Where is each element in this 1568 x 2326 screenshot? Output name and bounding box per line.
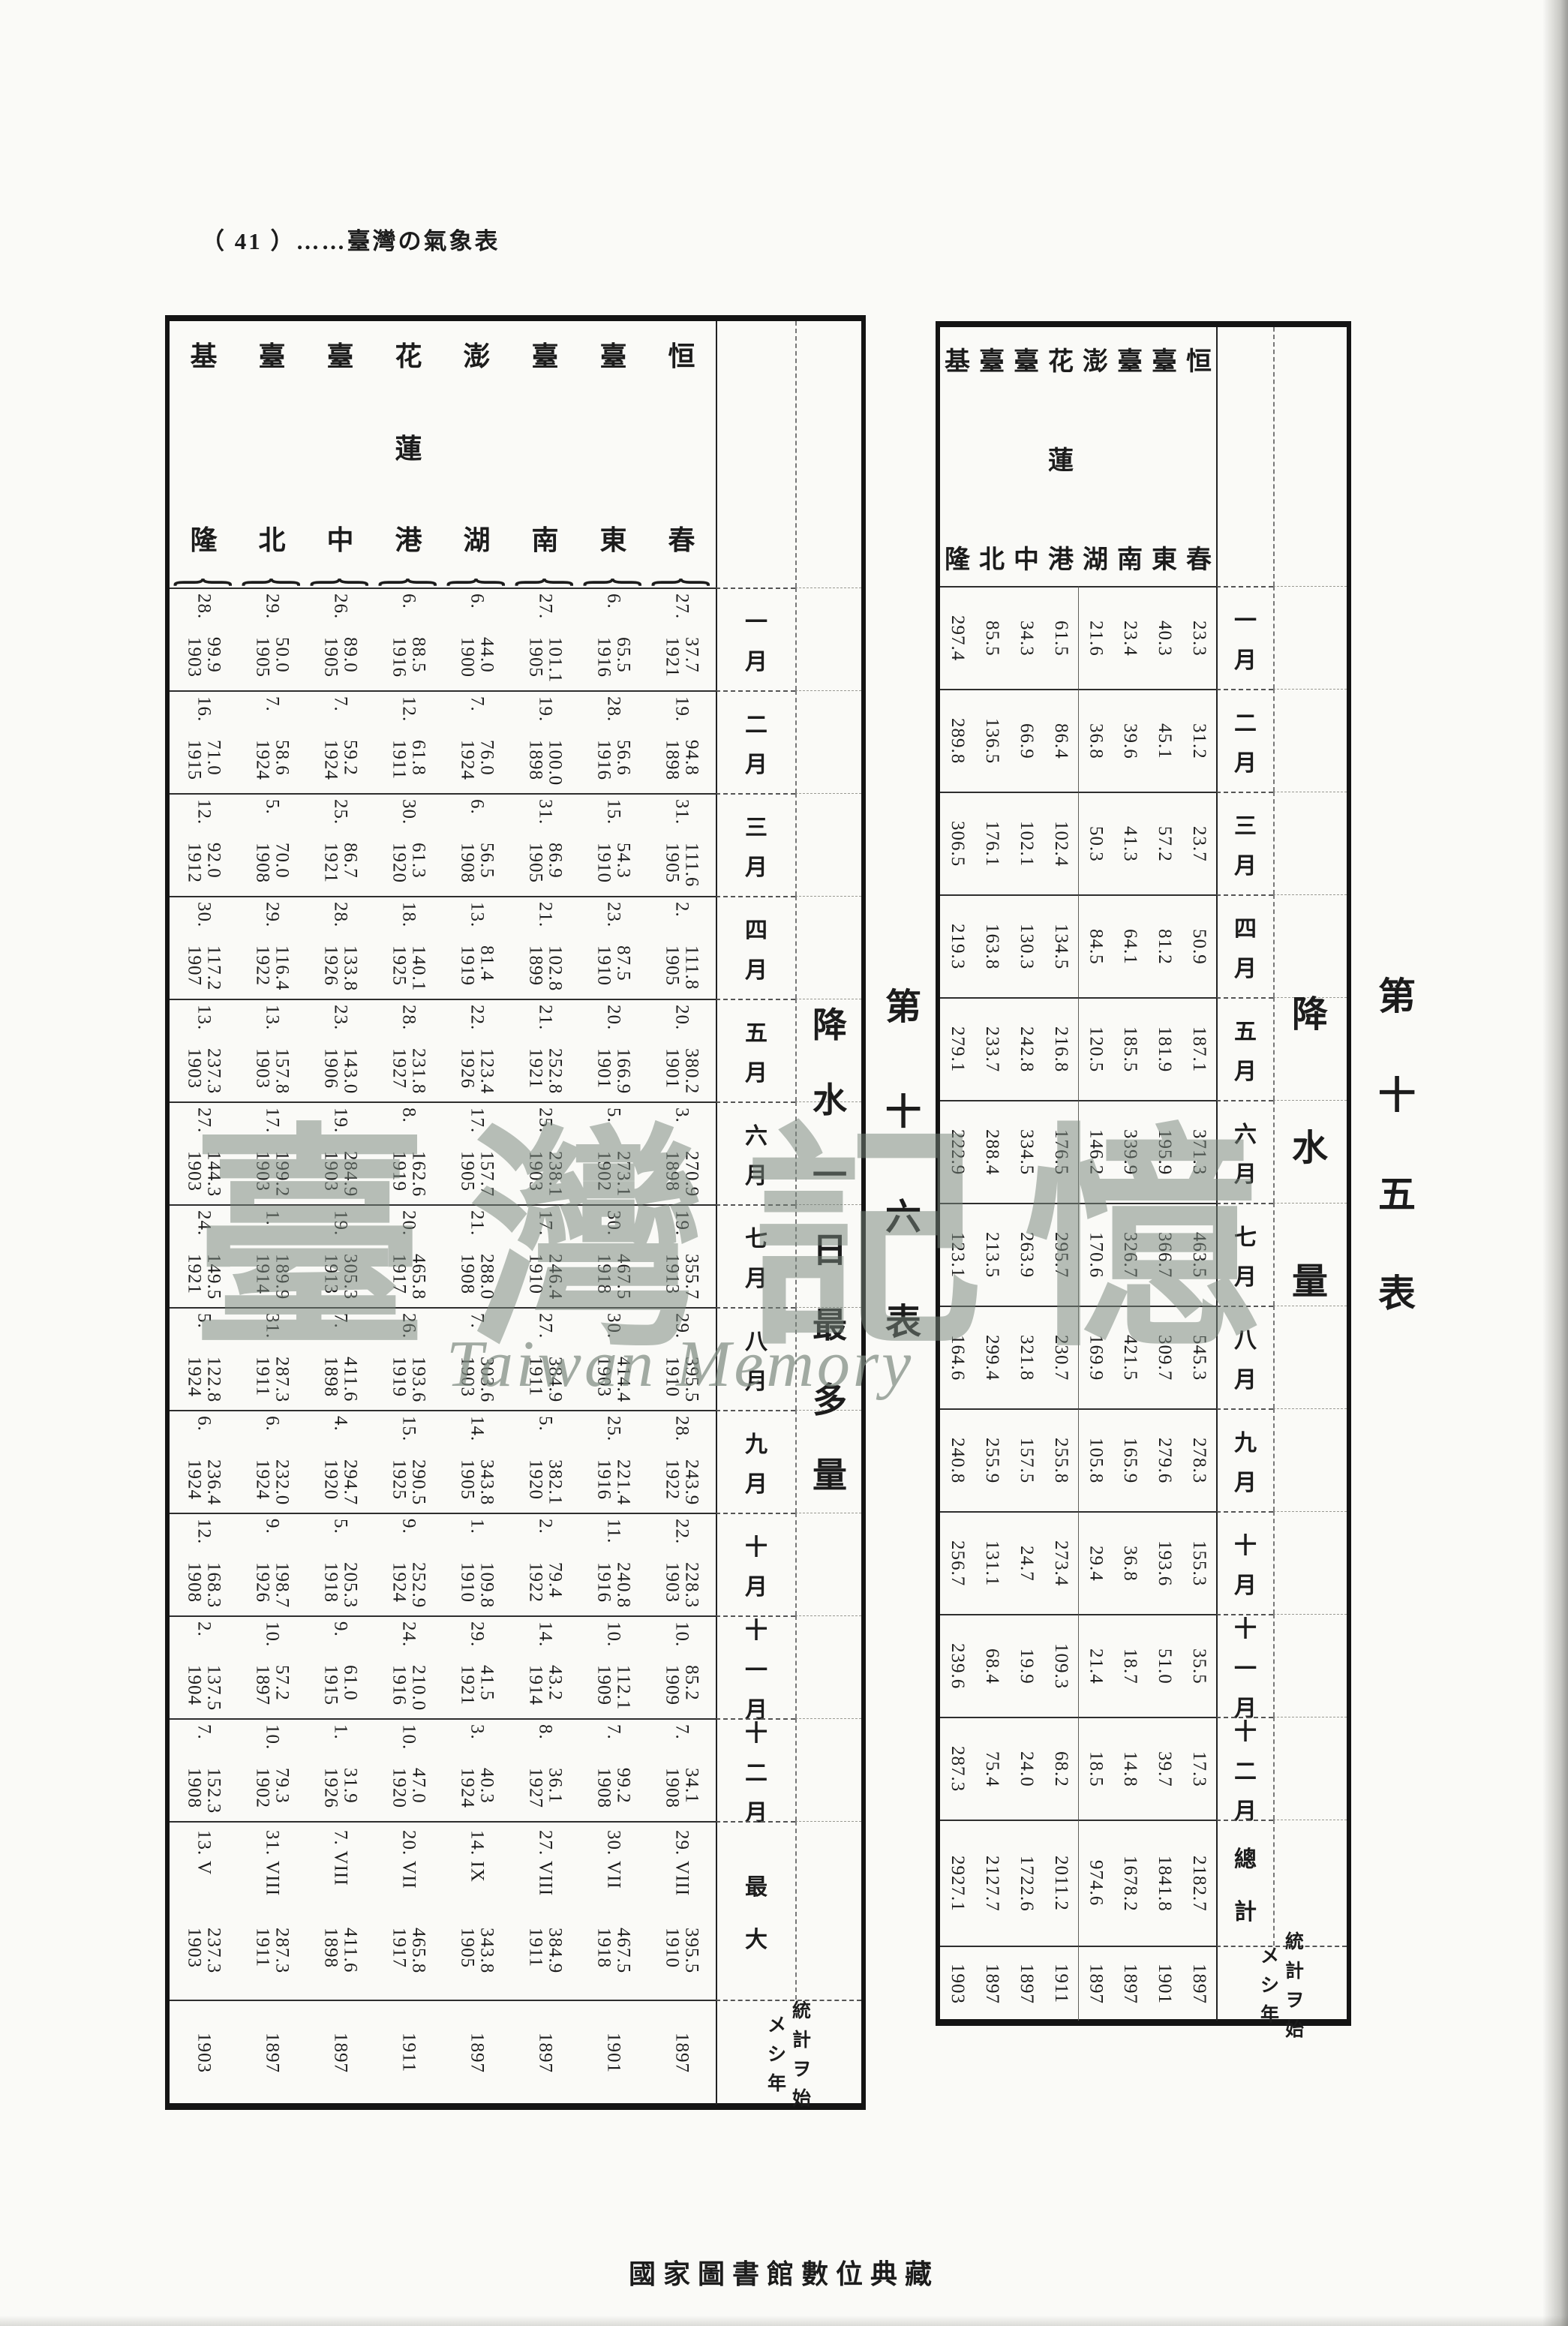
max-date-line: 29. VIII xyxy=(672,1830,692,1926)
data-cell: 165.9 xyxy=(1113,1408,1147,1511)
data-cell: 155.3 xyxy=(1182,1511,1216,1614)
data-cell: 1897 xyxy=(647,2000,716,2105)
row-label-cell: 二月 xyxy=(1216,689,1273,792)
day-of-month: 29. xyxy=(443,1621,511,1665)
data-cell: 2182.7 xyxy=(1182,1820,1216,1946)
max-date-line: 31. VIII xyxy=(263,1830,282,1926)
precipitation-value: 50.9 xyxy=(1182,896,1216,997)
station-name-char: 臺 xyxy=(979,341,1005,377)
row-label-cell: 十二月 xyxy=(1216,1717,1273,1820)
amount-and-year-line: 133.8 xyxy=(341,945,360,991)
amount-and-year-line: 152.3 xyxy=(204,1768,224,1814)
data-cell: 4.294.71920 xyxy=(306,1410,374,1513)
day-of-month: 6. xyxy=(374,594,443,637)
amount-and-year-line: 1898 xyxy=(526,740,545,786)
amount-and-year-line: 50.0 xyxy=(272,637,292,678)
day-of-month: 18. xyxy=(399,902,419,945)
max-amount-and-year-line: 384.9 xyxy=(545,1928,565,1973)
month-label: 四月 xyxy=(1218,896,1273,997)
row-label-cell: 四月 xyxy=(716,896,795,999)
precipitation-value: 278.3 xyxy=(1182,1410,1216,1511)
precipitation-value: 279.1 xyxy=(940,999,975,1100)
month-label-char: 月 xyxy=(745,849,767,882)
amount-and-year: 59.21924 xyxy=(306,740,374,790)
data-cell: 39.6 xyxy=(1113,689,1147,792)
precipitation-value: 130.3 xyxy=(1017,924,1036,969)
day-of-month: 12. xyxy=(194,1519,214,1562)
data-cell: 16.71.01915 xyxy=(170,690,238,793)
data-cell: 21.4 xyxy=(1078,1614,1113,1717)
day-of-month-line: 6. xyxy=(467,799,487,843)
station-name-char: 花 xyxy=(1048,341,1074,377)
scan-edge-bottom xyxy=(0,2315,1568,2326)
title-strip-cell xyxy=(1273,792,1347,894)
station-name-char: 基 xyxy=(945,341,970,377)
day-of-month: 20. xyxy=(604,1005,623,1048)
amount-and-year-line: 343.8 xyxy=(477,1459,497,1505)
precipitation-value-line: 273.4 xyxy=(1051,1540,1071,1586)
station-header-cell: 花蓮港{ xyxy=(374,321,443,588)
amount-and-year: 111.61905 xyxy=(647,843,716,893)
data-cell: 130.3 xyxy=(1009,894,1044,997)
precipitation-value-line: 29.4 xyxy=(1086,1546,1106,1582)
month-label: 十一月 xyxy=(1218,1615,1273,1717)
amount-and-year-line: 243.9 xyxy=(682,1459,701,1505)
precipitation-value: 273.4 xyxy=(1051,1540,1071,1586)
day-of-month: 23. xyxy=(604,902,623,945)
amount-and-year: 210.01916 xyxy=(389,1665,428,1711)
station-header-cell: 臺東 xyxy=(1147,327,1182,586)
precipitation-value: 81.2 xyxy=(1155,929,1174,965)
amount-and-year: 81.41919 xyxy=(458,945,497,986)
amount-and-year: 102.81899 xyxy=(511,945,579,996)
precipitation-value: 29.4 xyxy=(1079,1513,1113,1614)
precipitation-value: 240.8 xyxy=(948,1438,967,1483)
table-15-title-char: 降 xyxy=(1292,984,1328,1037)
precipitation-value: 66.9 xyxy=(1017,723,1036,759)
month-label-char: 十 xyxy=(1234,1713,1257,1746)
amount-and-year-line: 294.7 xyxy=(341,1459,360,1505)
data-cell: 11.240.81916 xyxy=(579,1513,647,1615)
day-of-month-line: 7. xyxy=(194,1724,214,1768)
day-of-month: 2. xyxy=(170,1621,238,1665)
day-of-month: 14. xyxy=(536,1621,555,1665)
amount-and-year-line: 1901 xyxy=(594,1048,614,1094)
annual-total: 1841.8 xyxy=(1147,1821,1182,1946)
max-date: 13. V xyxy=(170,1830,238,1926)
amount-and-year: 99.21908 xyxy=(594,1768,633,1808)
precipitation-value-line: 255.8 xyxy=(1051,1438,1071,1483)
data-cell: 239.6 xyxy=(940,1614,975,1717)
precipitation-value-line: 131.1 xyxy=(982,1540,1002,1586)
day-of-month: 30. xyxy=(399,799,419,843)
amount-and-year-line: 85.2 xyxy=(682,1665,701,1705)
table-16-title-char: 量 xyxy=(813,1448,847,1498)
amount-and-year: 123.41926 xyxy=(458,1048,497,1094)
row-label-cell: 三月 xyxy=(1216,792,1273,894)
day-of-month: 1. xyxy=(306,1724,374,1768)
day-of-month: 5. xyxy=(306,1519,374,1562)
day-of-month-line: 5. xyxy=(331,1519,350,1562)
data-cell: 1722.6 xyxy=(1009,1820,1044,1946)
label-char: メ xyxy=(767,2010,786,2037)
month-label: 九月 xyxy=(1218,1410,1273,1511)
month-label: 十月 xyxy=(717,1514,795,1615)
station-header-cell: 臺南 xyxy=(1113,327,1147,586)
day-of-month: 12. xyxy=(194,799,214,843)
precipitation-value-line: 81.2 xyxy=(1155,929,1174,965)
precipitation-value: 255.8 xyxy=(1044,1410,1078,1511)
amount-and-year-line: 166.9 xyxy=(614,1048,633,1094)
day-of-month-line: 15. xyxy=(399,1416,419,1459)
amount-and-year-line: 86.9 xyxy=(545,843,565,883)
precipitation-value-line: 21.4 xyxy=(1086,1648,1106,1684)
day-of-month: 5. xyxy=(331,1519,350,1562)
amount-and-year: 57.21897 xyxy=(253,1665,292,1705)
data-cell: 10.57.21897 xyxy=(238,1615,306,1718)
data-cell: 29. VIII395.51910 xyxy=(647,1821,716,2000)
max-amount-and-year: 237.31903 xyxy=(185,1928,224,1973)
amount-and-year: 198.71926 xyxy=(253,1562,292,1608)
data-cell: 974.6 xyxy=(1078,1820,1113,1946)
data-cell: 9.61.01915 xyxy=(306,1615,374,1718)
day-of-month: 20. xyxy=(579,1005,647,1048)
amount-and-year-line: 1903 xyxy=(185,637,204,678)
data-cell: 27. VIII384.91911 xyxy=(511,1821,579,2000)
row-label-cell: 十一月 xyxy=(1216,1614,1273,1717)
station-brace: { xyxy=(578,578,648,587)
data-cell: 187.1 xyxy=(1182,997,1216,1100)
precipitation-value: 287.3 xyxy=(940,1718,975,1820)
day-of-month: 6. xyxy=(238,1416,306,1459)
day-of-month: 20. xyxy=(647,1005,716,1048)
amount-and-year: 294.71920 xyxy=(306,1459,374,1510)
day-of-month: 16. xyxy=(170,696,238,740)
station-name: 臺中 xyxy=(1009,341,1044,575)
amount-and-year-line: 1916 xyxy=(594,740,614,780)
data-cell: 6.56.51908 xyxy=(443,793,511,896)
amount-and-year: 123.41926 xyxy=(443,1048,511,1098)
amount-and-year: 112.11909 xyxy=(579,1665,647,1715)
amount-and-year: 89.01905 xyxy=(321,637,360,678)
amount-and-year-line: 1922 xyxy=(662,1459,682,1505)
day-of-month: 31. xyxy=(536,799,555,843)
amount-and-year-line: 198.7 xyxy=(272,1562,292,1608)
amount-and-year: 157.81903 xyxy=(238,1048,306,1098)
data-cell: 2011.2 xyxy=(1044,1820,1078,1946)
amount-and-year-line: 1910 xyxy=(458,1562,477,1608)
data-cell: 28.231.81927 xyxy=(374,999,443,1101)
data-cell: 1.31.91926 xyxy=(306,1718,374,1821)
amount-and-year: 37.71921 xyxy=(662,637,701,678)
station-header-cell: 花蓮港 xyxy=(1044,327,1078,586)
amount-and-year-line: 36.1 xyxy=(545,1768,565,1808)
statistics-start-year: 1897 xyxy=(982,1964,1002,2004)
data-cell: 2.111.81905 xyxy=(647,896,716,999)
station-name: 臺北 xyxy=(238,335,306,557)
precipitation-value: 102.1 xyxy=(1017,821,1036,867)
station-header-cell: 恒春 xyxy=(1182,327,1216,586)
precipitation-value: 102.1 xyxy=(1009,793,1044,894)
max-date-line: 20. VII xyxy=(399,1830,419,1926)
data-cell: 22.123.41926 xyxy=(443,999,511,1101)
amount-and-year-line: 1905 xyxy=(458,1459,477,1505)
precipitation-value: 279.6 xyxy=(1155,1438,1174,1483)
data-cell: 25.86.71921 xyxy=(306,793,374,896)
day-of-month-line: 21. xyxy=(536,902,555,945)
precipitation-value: 134.5 xyxy=(1051,924,1071,969)
precipitation-value: 21.4 xyxy=(1086,1648,1106,1684)
day-of-month: 16. xyxy=(194,696,214,740)
amount-and-year: 100.01898 xyxy=(511,740,579,790)
amount-and-year-line: 1920 xyxy=(389,1768,409,1808)
amount-and-year: 228.31903 xyxy=(647,1562,716,1612)
precipitation-value: 21.6 xyxy=(1079,588,1113,689)
data-cell: 256.7 xyxy=(940,1511,975,1614)
data-cell: 13. V237.31903 xyxy=(170,1821,238,2000)
data-cell: 30.117.21907 xyxy=(170,896,238,999)
summary-label-char: 最 xyxy=(745,1868,767,1901)
precipitation-value: 36.8 xyxy=(1120,1546,1140,1582)
day-of-month: 1. xyxy=(443,1519,511,1562)
data-cell: 40.3 xyxy=(1147,586,1182,689)
day-of-month: 13. xyxy=(263,1005,282,1048)
precipitation-value: 36.8 xyxy=(1113,1513,1147,1614)
data-cell: 1897 xyxy=(1078,1946,1113,2021)
day-of-month-line: 14. xyxy=(467,1416,487,1459)
data-cell: 22.228.31903 xyxy=(647,1513,716,1615)
precipitation-value: 155.3 xyxy=(1182,1513,1216,1614)
annual-total-line: 1678.2 xyxy=(1120,1856,1140,1912)
station-name-char: 恒 xyxy=(668,335,695,374)
amount-and-year-line: 37.7 xyxy=(682,637,701,678)
day-of-month-line: 30. xyxy=(399,799,419,843)
data-cell: 279.1 xyxy=(940,997,975,1100)
month-label: 一月 xyxy=(1218,588,1273,689)
data-cell: 17.3 xyxy=(1182,1717,1216,1820)
day-of-month: 22. xyxy=(647,1519,716,1562)
data-cell: 1897 xyxy=(1113,1946,1147,2021)
day-of-month-line: 9. xyxy=(263,1519,282,1562)
day-of-month: 11. xyxy=(604,1519,623,1562)
amount-and-year-line: 380.2 xyxy=(682,1048,701,1094)
amount-and-year-line: 1926 xyxy=(458,1048,477,1094)
station-header-cell: 臺南{ xyxy=(511,321,579,588)
day-of-month-line: 24. xyxy=(399,1621,419,1665)
precipitation-value: 23.4 xyxy=(1120,621,1140,657)
data-cell: 273.4 xyxy=(1044,1511,1078,1614)
day-of-month: 25. xyxy=(331,799,350,843)
precipitation-value: 109.3 xyxy=(1051,1643,1071,1689)
data-cell: 1897 xyxy=(511,2000,579,2105)
precipitation-value: 136.5 xyxy=(982,718,1002,764)
amount-and-year-line: 101.1 xyxy=(545,637,565,683)
precipitation-value-line: 64.1 xyxy=(1120,929,1140,965)
amount-and-year: 86.71921 xyxy=(321,843,360,883)
day-of-month-line: 29. xyxy=(467,1621,487,1665)
day-of-month-line: 25. xyxy=(331,799,350,843)
summary-row-label: 最大 xyxy=(717,1823,795,2000)
station-name-char: 東 xyxy=(599,518,626,557)
amount-and-year: 58.61924 xyxy=(238,740,306,790)
day-of-month: 4. xyxy=(331,1416,350,1459)
precipitation-value: 242.8 xyxy=(1009,999,1044,1100)
station-name: 恒春 xyxy=(1182,341,1216,575)
precipitation-value: 39.6 xyxy=(1120,723,1140,759)
data-cell: 279.6 xyxy=(1147,1408,1182,1511)
precipitation-value: 75.4 xyxy=(982,1751,1002,1787)
amount-and-year-line: 61.8 xyxy=(409,740,428,780)
amount-and-year-line: 1926 xyxy=(253,1562,272,1608)
max-amount-and-year: 384.91911 xyxy=(526,1928,565,1973)
data-cell: 5.205.31918 xyxy=(306,1513,374,1615)
precipitation-value: 66.9 xyxy=(1009,690,1044,792)
day-of-month: 7. xyxy=(170,1724,238,1768)
amount-and-year-line: 1926 xyxy=(321,1768,341,1808)
data-cell: 51.0 xyxy=(1147,1614,1182,1717)
amount-and-year: 101.11905 xyxy=(526,637,565,683)
statistics-start-year-line: 1897 xyxy=(331,2033,350,2073)
data-cell: 41.3 xyxy=(1113,792,1147,894)
label-char: 計 xyxy=(792,2025,811,2052)
amount-and-year-line: 231.8 xyxy=(409,1048,428,1094)
day-of-month-line: 14. xyxy=(536,1621,555,1665)
data-cell: 1901 xyxy=(579,2000,647,2105)
row-label-cell: 二月 xyxy=(716,690,795,793)
data-cell: 66.9 xyxy=(1009,689,1044,792)
data-cell: 1897 xyxy=(306,2000,374,2105)
precipitation-value-line: 24.0 xyxy=(1017,1751,1036,1787)
data-cell: 31.111.61905 xyxy=(647,793,716,896)
max-date-line: 27. VIII xyxy=(536,1830,555,1926)
day-of-month: 6. xyxy=(467,799,487,843)
data-cell: 157.5 xyxy=(1009,1408,1044,1511)
day-of-month-line: 27. xyxy=(672,594,692,637)
precipitation-value-line: 68.4 xyxy=(982,1648,1002,1684)
day-of-month: 27. xyxy=(672,594,692,637)
amount-and-year: 41.51921 xyxy=(458,1665,497,1705)
amount-and-year-line: 1905 xyxy=(253,637,272,678)
precipitation-value: 21.6 xyxy=(1086,621,1106,657)
data-cell: 25.221.41916 xyxy=(579,1410,647,1513)
row-label-cell: 十一月 xyxy=(716,1615,795,1718)
day-of-month: 10. xyxy=(604,1621,623,1665)
data-cell: 20.380.21901 xyxy=(647,999,716,1101)
day-of-month-line: 6. xyxy=(194,1416,214,1459)
station-name-char: 花 xyxy=(395,335,422,374)
month-label-char: 十 xyxy=(1234,1610,1257,1643)
precipitation-value: 297.4 xyxy=(940,588,975,689)
station-name: 澎湖 xyxy=(443,335,511,557)
data-cell: 287.3 xyxy=(940,1717,975,1820)
month-label-char: 月 xyxy=(745,1465,767,1498)
amount-and-year-line: 56.5 xyxy=(477,843,497,883)
amount-and-year: 56.61916 xyxy=(579,740,647,790)
amount-and-year-line: 1924 xyxy=(458,740,477,780)
precipitation-value: 36.8 xyxy=(1086,723,1106,759)
month-label-char: 月 xyxy=(1234,1053,1257,1086)
day-of-month-line: 28. xyxy=(194,594,214,637)
data-cell: 15.290.51925 xyxy=(374,1410,443,1513)
amount-and-year: 79.41922 xyxy=(526,1562,565,1603)
data-cell: 31.2 xyxy=(1182,689,1216,792)
data-cell: 36.8 xyxy=(1113,1511,1147,1614)
data-cell: 193.6 xyxy=(1147,1511,1182,1614)
summary-label-char: 總 xyxy=(1234,1841,1257,1874)
station-name: 花蓮港 xyxy=(374,335,443,557)
amount-and-year-line: 140.1 xyxy=(409,945,428,991)
day-of-month: 30. xyxy=(374,799,443,843)
month-label-char: 九 xyxy=(745,1426,767,1459)
data-cell: 163.8 xyxy=(975,894,1009,997)
day-of-month: 5. xyxy=(536,1416,555,1459)
day-of-month: 21. xyxy=(536,902,555,945)
data-cell: 24.7 xyxy=(1009,1511,1044,1614)
amount-and-year-line: 1906 xyxy=(321,1048,341,1094)
precipitation-value-line: 239.6 xyxy=(948,1643,967,1689)
day-of-month: 2. xyxy=(536,1519,555,1562)
title-strip-cell xyxy=(1273,894,1347,997)
data-cell: 81.2 xyxy=(1147,894,1182,997)
day-of-month-line: 10. xyxy=(263,1724,282,1768)
amount-and-year-line: 54.3 xyxy=(614,843,633,883)
max-amount-and-year: 343.81905 xyxy=(443,1928,511,1997)
data-cell: 86.4 xyxy=(1044,689,1078,792)
day-of-month: 21. xyxy=(536,1005,555,1048)
month-label-char: 一 xyxy=(745,603,767,636)
day-of-month-line: 10. xyxy=(672,1621,692,1665)
amount-and-year-line: 1916 xyxy=(389,637,409,678)
day-of-month-line: 22. xyxy=(467,1005,487,1048)
statistics-start-year-line: 1897 xyxy=(1086,1964,1106,2004)
amount-and-year: 117.21907 xyxy=(185,945,224,990)
station-name-char: 中 xyxy=(326,518,353,557)
statistics-start-year: 1897 xyxy=(1120,1964,1140,2004)
amount-and-year-line: 157.8 xyxy=(272,1048,292,1094)
day-of-month: 25. xyxy=(604,1416,623,1459)
label-char: シ xyxy=(1260,1970,1279,1997)
max-date-line: 7. VIII xyxy=(331,1830,350,1926)
precipitation-value: 240.8 xyxy=(940,1410,975,1511)
amount-and-year-line: 1927 xyxy=(526,1768,545,1808)
amount-and-year: 243.91922 xyxy=(647,1459,716,1510)
day-of-month: 28. xyxy=(194,594,214,637)
month-label: 五月 xyxy=(717,1000,795,1101)
max-amount-and-year-line: 395.5 xyxy=(682,1928,701,1973)
amount-and-year: 140.11925 xyxy=(389,945,428,991)
precipitation-value: 273.4 xyxy=(1044,1513,1078,1614)
precipitation-value-line: 289.8 xyxy=(948,718,967,764)
precipitation-value: 120.5 xyxy=(1086,1026,1106,1072)
day-of-month-line: 15. xyxy=(604,799,623,843)
max-amount-and-year-line: 237.3 xyxy=(204,1928,224,1973)
day-of-month: 10. xyxy=(263,1621,282,1665)
amount-and-year: 44.01900 xyxy=(443,637,511,687)
amount-and-year-line: 1916 xyxy=(594,637,614,678)
row-label-column-header xyxy=(1216,327,1273,586)
precipitation-value: 219.3 xyxy=(948,924,967,969)
amount-and-year: 56.51908 xyxy=(443,843,511,893)
day-of-month: 28. xyxy=(331,902,350,945)
precipitation-value: 157.5 xyxy=(1017,1438,1036,1483)
day-of-month: 9. xyxy=(263,1519,282,1562)
day-of-month: 12. xyxy=(374,696,443,740)
precipitation-value-line: 66.9 xyxy=(1017,723,1036,759)
title-strip-cell xyxy=(1273,1820,1347,1946)
precipitation-value: 57.2 xyxy=(1147,793,1182,894)
archive-caption: 國家圖書館數位典藏 xyxy=(0,2252,1568,2291)
day-of-month-line: 22. xyxy=(672,1519,692,1562)
